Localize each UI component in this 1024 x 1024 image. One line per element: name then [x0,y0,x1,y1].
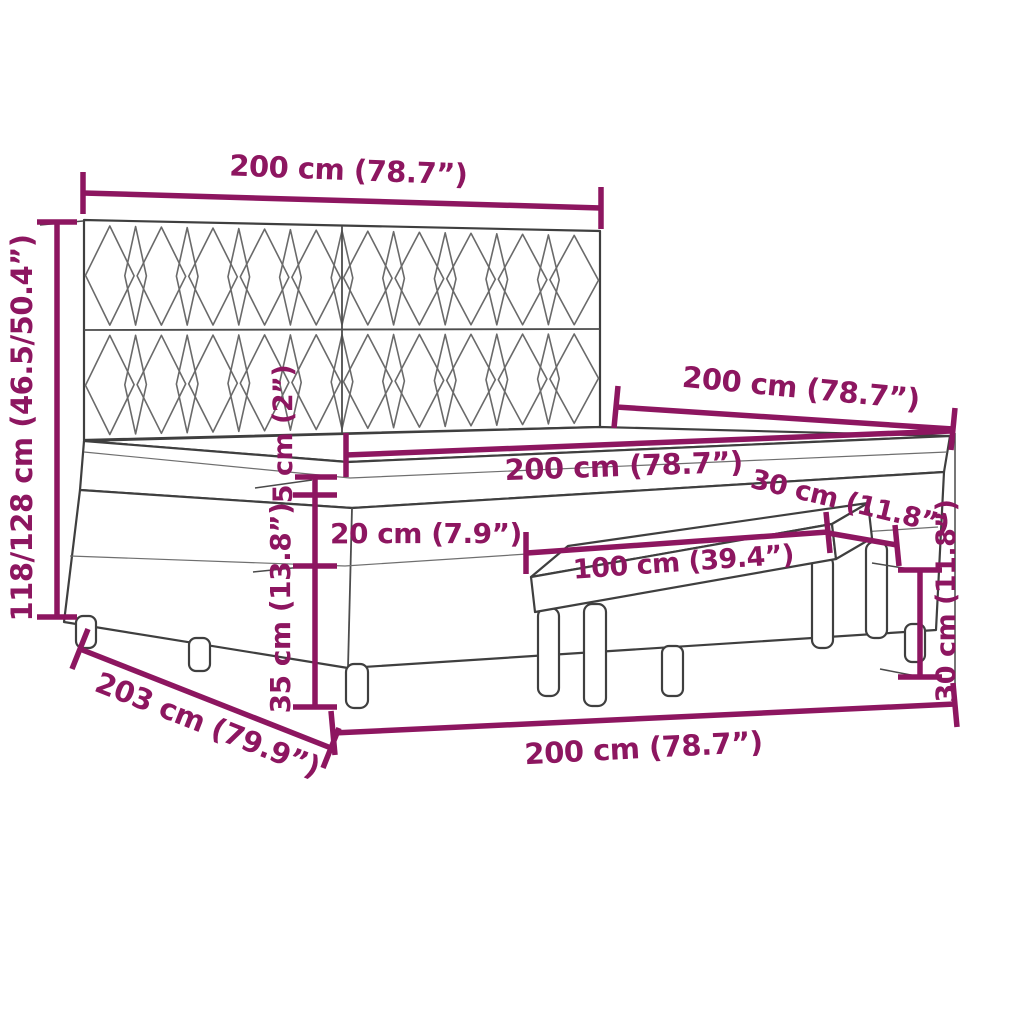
bench-height-label: 30 cm (11.8”) [931,499,962,702]
bed-length-label: 200 cm (78.7”) [681,360,921,417]
bed-leg [189,638,210,671]
headboard [84,220,600,440]
topper-height-label: 5 cm (2”) [268,365,299,503]
mattress-height-label: 20 cm (7.9”) [330,517,522,550]
bed-leg [662,646,683,696]
bench-leg [538,608,559,696]
product-dimension-image: 200 cm (78.7”) 118/128 cm (46.5/50.4”) 2… [0,0,1024,1024]
bed-width-label: 200 cm (78.7”) [524,725,764,771]
bench-leg [866,542,887,638]
bed-leg [346,664,368,708]
bench-leg [812,556,833,648]
headboard-horizontal-seam [84,329,600,330]
overall-height-label: 118/128 cm (46.5/50.4”) [5,234,39,621]
base-height-label: 35 cm (13.8”) [264,503,297,714]
headboard-width-label: 200 cm (78.7”) [229,148,468,191]
bed-dimension-diagram: 200 cm (78.7”) 118/128 cm (46.5/50.4”) 2… [0,0,1024,1024]
bench-leg [584,604,606,706]
